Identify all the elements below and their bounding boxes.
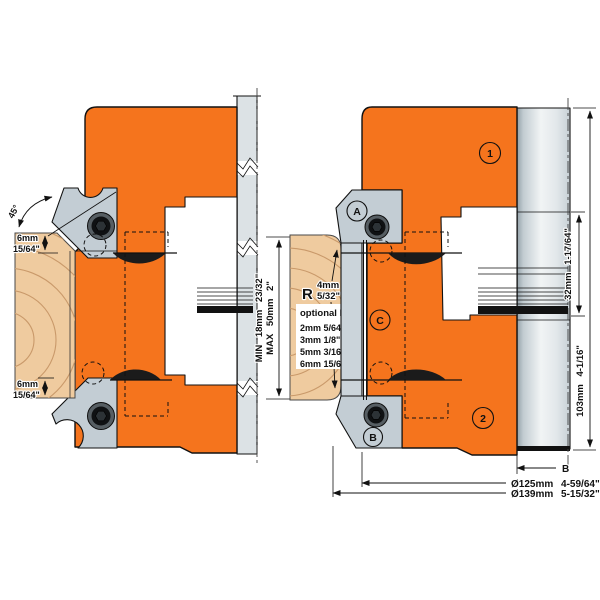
part-marker-a-label: A xyxy=(353,206,361,218)
hex-screw-bottom-right-icon xyxy=(364,403,388,427)
optional-radius-title: optional R xyxy=(300,308,347,319)
dimension-min-max: MIN 18mm 23/32" MAX 50mm 2" xyxy=(254,237,292,399)
dimension-total-height: 103mm 4-1/16" xyxy=(573,108,596,450)
angle-label: 45° xyxy=(6,203,21,220)
right-section-view: 1 2 A B C 32mm 1-17/64" xyxy=(333,98,600,500)
technical-drawing-page: 6mm 15/64" 6mm 15/64" 45° MIN 18mm 23/32… xyxy=(0,0,600,600)
part-marker-2-label: 2 xyxy=(480,413,486,425)
dimension-max-diameter: Ø139mm 5-15/32" xyxy=(333,446,600,500)
top-depth-mm-label: 6mm xyxy=(17,233,38,243)
total-height-label: 103mm 4-1/16" xyxy=(575,345,586,417)
bore-pocket-left xyxy=(165,197,237,385)
radius-in-label: 5/32" xyxy=(317,291,340,302)
radius-mm-label: 4mm xyxy=(317,280,339,291)
hex-screw-top-right-icon xyxy=(365,215,389,239)
b-dimension-label: B xyxy=(562,464,569,475)
optional-radius-option: 5mm 3/16" xyxy=(300,347,345,357)
hex-screw-bottom-left-icon xyxy=(88,403,115,430)
bore-length-label: 32mm 1-17/64" xyxy=(563,228,574,300)
bottom-depth-mm-label: 6mm xyxy=(17,379,38,389)
bottom-depth-in-label: 15/64" xyxy=(13,390,40,400)
top-depth-in-label: 15/64" xyxy=(13,244,40,254)
optional-radius-option: 2mm 5/64" xyxy=(300,323,345,333)
radius-prefix-label: R xyxy=(302,286,313,303)
cutter-head-technical-drawing: 6mm 15/64" 6mm 15/64" 45° MIN 18mm 23/32… xyxy=(0,0,600,600)
max-diameter-label: Ø139mm 5-15/32" xyxy=(511,489,600,500)
dimension-b: B xyxy=(517,452,569,475)
max-thickness-label: MAX 50mm 2" xyxy=(265,281,276,355)
part-marker-c-label: C xyxy=(376,315,384,327)
part-marker-1-label: 1 xyxy=(487,148,493,160)
left-section-view: 6mm 15/64" 6mm 15/64" 45° xyxy=(0,88,261,478)
min-thickness-label: MIN 18mm 23/32" xyxy=(254,274,265,362)
bore-pocket-right xyxy=(441,207,517,320)
knife-clamp-strip xyxy=(341,243,362,396)
optional-radius-option: 3mm 1/8" xyxy=(300,335,340,345)
part-marker-b-label: B xyxy=(369,432,377,444)
